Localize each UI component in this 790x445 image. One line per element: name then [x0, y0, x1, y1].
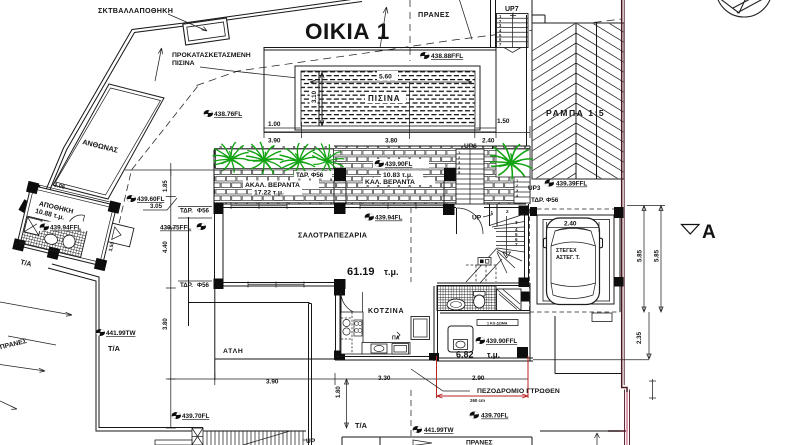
svg-text:1.80: 1.80 — [336, 386, 342, 398]
svg-text:ΑΣΤΕΓ. Τ.: ΑΣΤΕΓ. Τ. — [556, 255, 580, 261]
svg-text:439.39FFL: 439.39FFL — [556, 181, 587, 188]
svg-text:439.70FL: 439.70FL — [182, 413, 209, 420]
svg-text:439.70FL: 439.70FL — [481, 413, 508, 420]
svg-text:441.99TW: 441.99TW — [106, 330, 136, 337]
svg-text:17.22 τ.μ.: 17.22 τ.μ. — [254, 190, 284, 197]
svg-text:6.82: 6.82 — [456, 350, 474, 360]
svg-text:ΑΚΑΛ. ΒΕΡΑΝΤΑ: ΑΚΑΛ. ΒΕΡΑΝΤΑ — [245, 182, 300, 189]
svg-text:1.00: 1.00 — [268, 121, 281, 128]
svg-text:UP6: UP6 — [464, 143, 477, 150]
svg-text:3.90: 3.90 — [268, 138, 281, 145]
svg-text:438.88FFL: 438.88FFL — [431, 53, 463, 60]
svg-text:ΠΡΑΝΕΣ: ΠΡΑΝΕΣ — [418, 10, 450, 19]
svg-text:260 cm: 260 cm — [470, 398, 485, 403]
svg-text:441.99TW: 441.99TW — [424, 427, 454, 434]
svg-text:1 KG ΔΩΜΑ: 1 KG ΔΩΜΑ — [487, 322, 508, 326]
svg-text:439.90FFL: 439.90FFL — [486, 338, 517, 345]
svg-text:3.90: 3.90 — [266, 379, 279, 386]
svg-text:UP: UP — [306, 438, 316, 445]
svg-text:Φ56: Φ56 — [197, 282, 210, 289]
svg-text:ΚΑΛ. ΒΕΡΑΝΤΑ: ΚΑΛ. ΒΕΡΑΝΤΑ — [365, 179, 415, 186]
svg-text:2.35: 2.35 — [636, 331, 643, 344]
svg-text:ΟΙΚΙΑ 1: ΟΙΚΙΑ 1 — [305, 19, 390, 44]
svg-text:61.19: 61.19 — [347, 266, 375, 278]
svg-text:2.40: 2.40 — [482, 138, 495, 145]
svg-text:ΠΡΑΝΕΣ: ΠΡΑΝΕΣ — [466, 440, 493, 445]
svg-text:ΤΔΡ.: ΤΔΡ. — [180, 208, 193, 215]
svg-text:UP: UP — [472, 215, 482, 222]
svg-text:10.83 τ.μ.: 10.83 τ.μ. — [383, 172, 413, 179]
svg-text:ΤΔΡ. Φ56: ΤΔΡ. Φ56 — [531, 197, 559, 204]
svg-text:τ.μ.: τ.μ. — [384, 267, 399, 277]
svg-text:3.80: 3.80 — [163, 318, 169, 330]
svg-text:ΣΑΛΟΤΡΑΠΕΖΑΡΙΑ: ΣΑΛΟΤΡΑΠΕΖΑΡΙΑ — [298, 231, 367, 240]
svg-text:7: 7 — [515, 242, 518, 247]
svg-text:2.40: 2.40 — [564, 221, 577, 228]
svg-text:3.30: 3.30 — [378, 375, 391, 382]
svg-text:5.85: 5.85 — [637, 249, 644, 262]
svg-text:ΣΤΕΓΕΧ: ΣΤΕΓΕΧ — [556, 248, 577, 254]
svg-text:3: 3 — [515, 220, 518, 225]
svg-text:ΤΔΡ. Φ56: ΤΔΡ. Φ56 — [296, 172, 324, 179]
svg-text:τ.μ.: τ.μ. — [487, 351, 500, 360]
svg-text:ΡΑΜΠΑ 1:5: ΡΑΜΠΑ 1:5 — [546, 108, 605, 118]
svg-text:3.05: 3.05 — [150, 203, 163, 210]
svg-text:1: 1 — [491, 210, 494, 215]
svg-text:ΠΕΖΟΔΡΟΜΙΟ ΓΤΡΩΘΕΝ: ΠΕΖΟΔΡΟΜΙΟ ΓΤΡΩΘΕΝ — [477, 388, 560, 395]
svg-text:Φ56: Φ56 — [197, 208, 210, 215]
svg-text:439.94FL: 439.94FL — [375, 215, 402, 222]
svg-text:439.94FFL: 439.94FFL — [50, 225, 81, 232]
svg-text:ΠΙΣΙΝΑ: ΠΙΣΙΝΑ — [368, 94, 401, 103]
svg-text:ΠΙΣΙΝΑ: ΠΙΣΙΝΑ — [172, 60, 195, 67]
svg-text:2: 2 — [506, 209, 509, 214]
svg-text:ΚΟΤΖΙΝΑ: ΚΟΤΖΙΝΑ — [368, 308, 404, 315]
svg-text:3.10: 3.10 — [311, 90, 318, 103]
svg-text:Τ/Α: Τ/Α — [108, 344, 121, 353]
svg-text:UP3: UP3 — [528, 185, 541, 192]
svg-text:1.85: 1.85 — [163, 180, 169, 192]
svg-text:ΤΔΡ.: ΤΔΡ. — [180, 282, 193, 289]
svg-text:439.60FL: 439.60FL — [137, 196, 164, 203]
svg-text:5.60: 5.60 — [379, 74, 392, 81]
svg-text:ΣΚΤΒΑΛΛΑΠΟΘΗΚΗ: ΣΚΤΒΑΛΛΑΠΟΘΗΚΗ — [98, 6, 173, 15]
svg-text:4.40: 4.40 — [163, 241, 169, 253]
svg-text:ΑΤΛΗ: ΑΤΛΗ — [223, 348, 244, 355]
svg-text:ΠΡΟΚΑΤΑΣΚΕΤΑΣΜΕΝΗ: ΠΡΟΚΑΤΑΣΚΕΤΑΣΜΕΝΗ — [172, 52, 251, 59]
svg-text:1.50: 1.50 — [497, 118, 510, 125]
svg-text:438.76FL: 438.76FL — [214, 111, 242, 118]
svg-text:3.80: 3.80 — [385, 138, 398, 145]
svg-text:439.90FL: 439.90FL — [385, 161, 412, 168]
svg-text:Τ/Α: Τ/Α — [355, 421, 368, 430]
svg-text:2.90: 2.90 — [472, 375, 485, 382]
svg-text:5.85: 5.85 — [654, 249, 661, 262]
svg-text:A: A — [702, 222, 716, 243]
svg-text:UP7: UP7 — [505, 6, 519, 13]
